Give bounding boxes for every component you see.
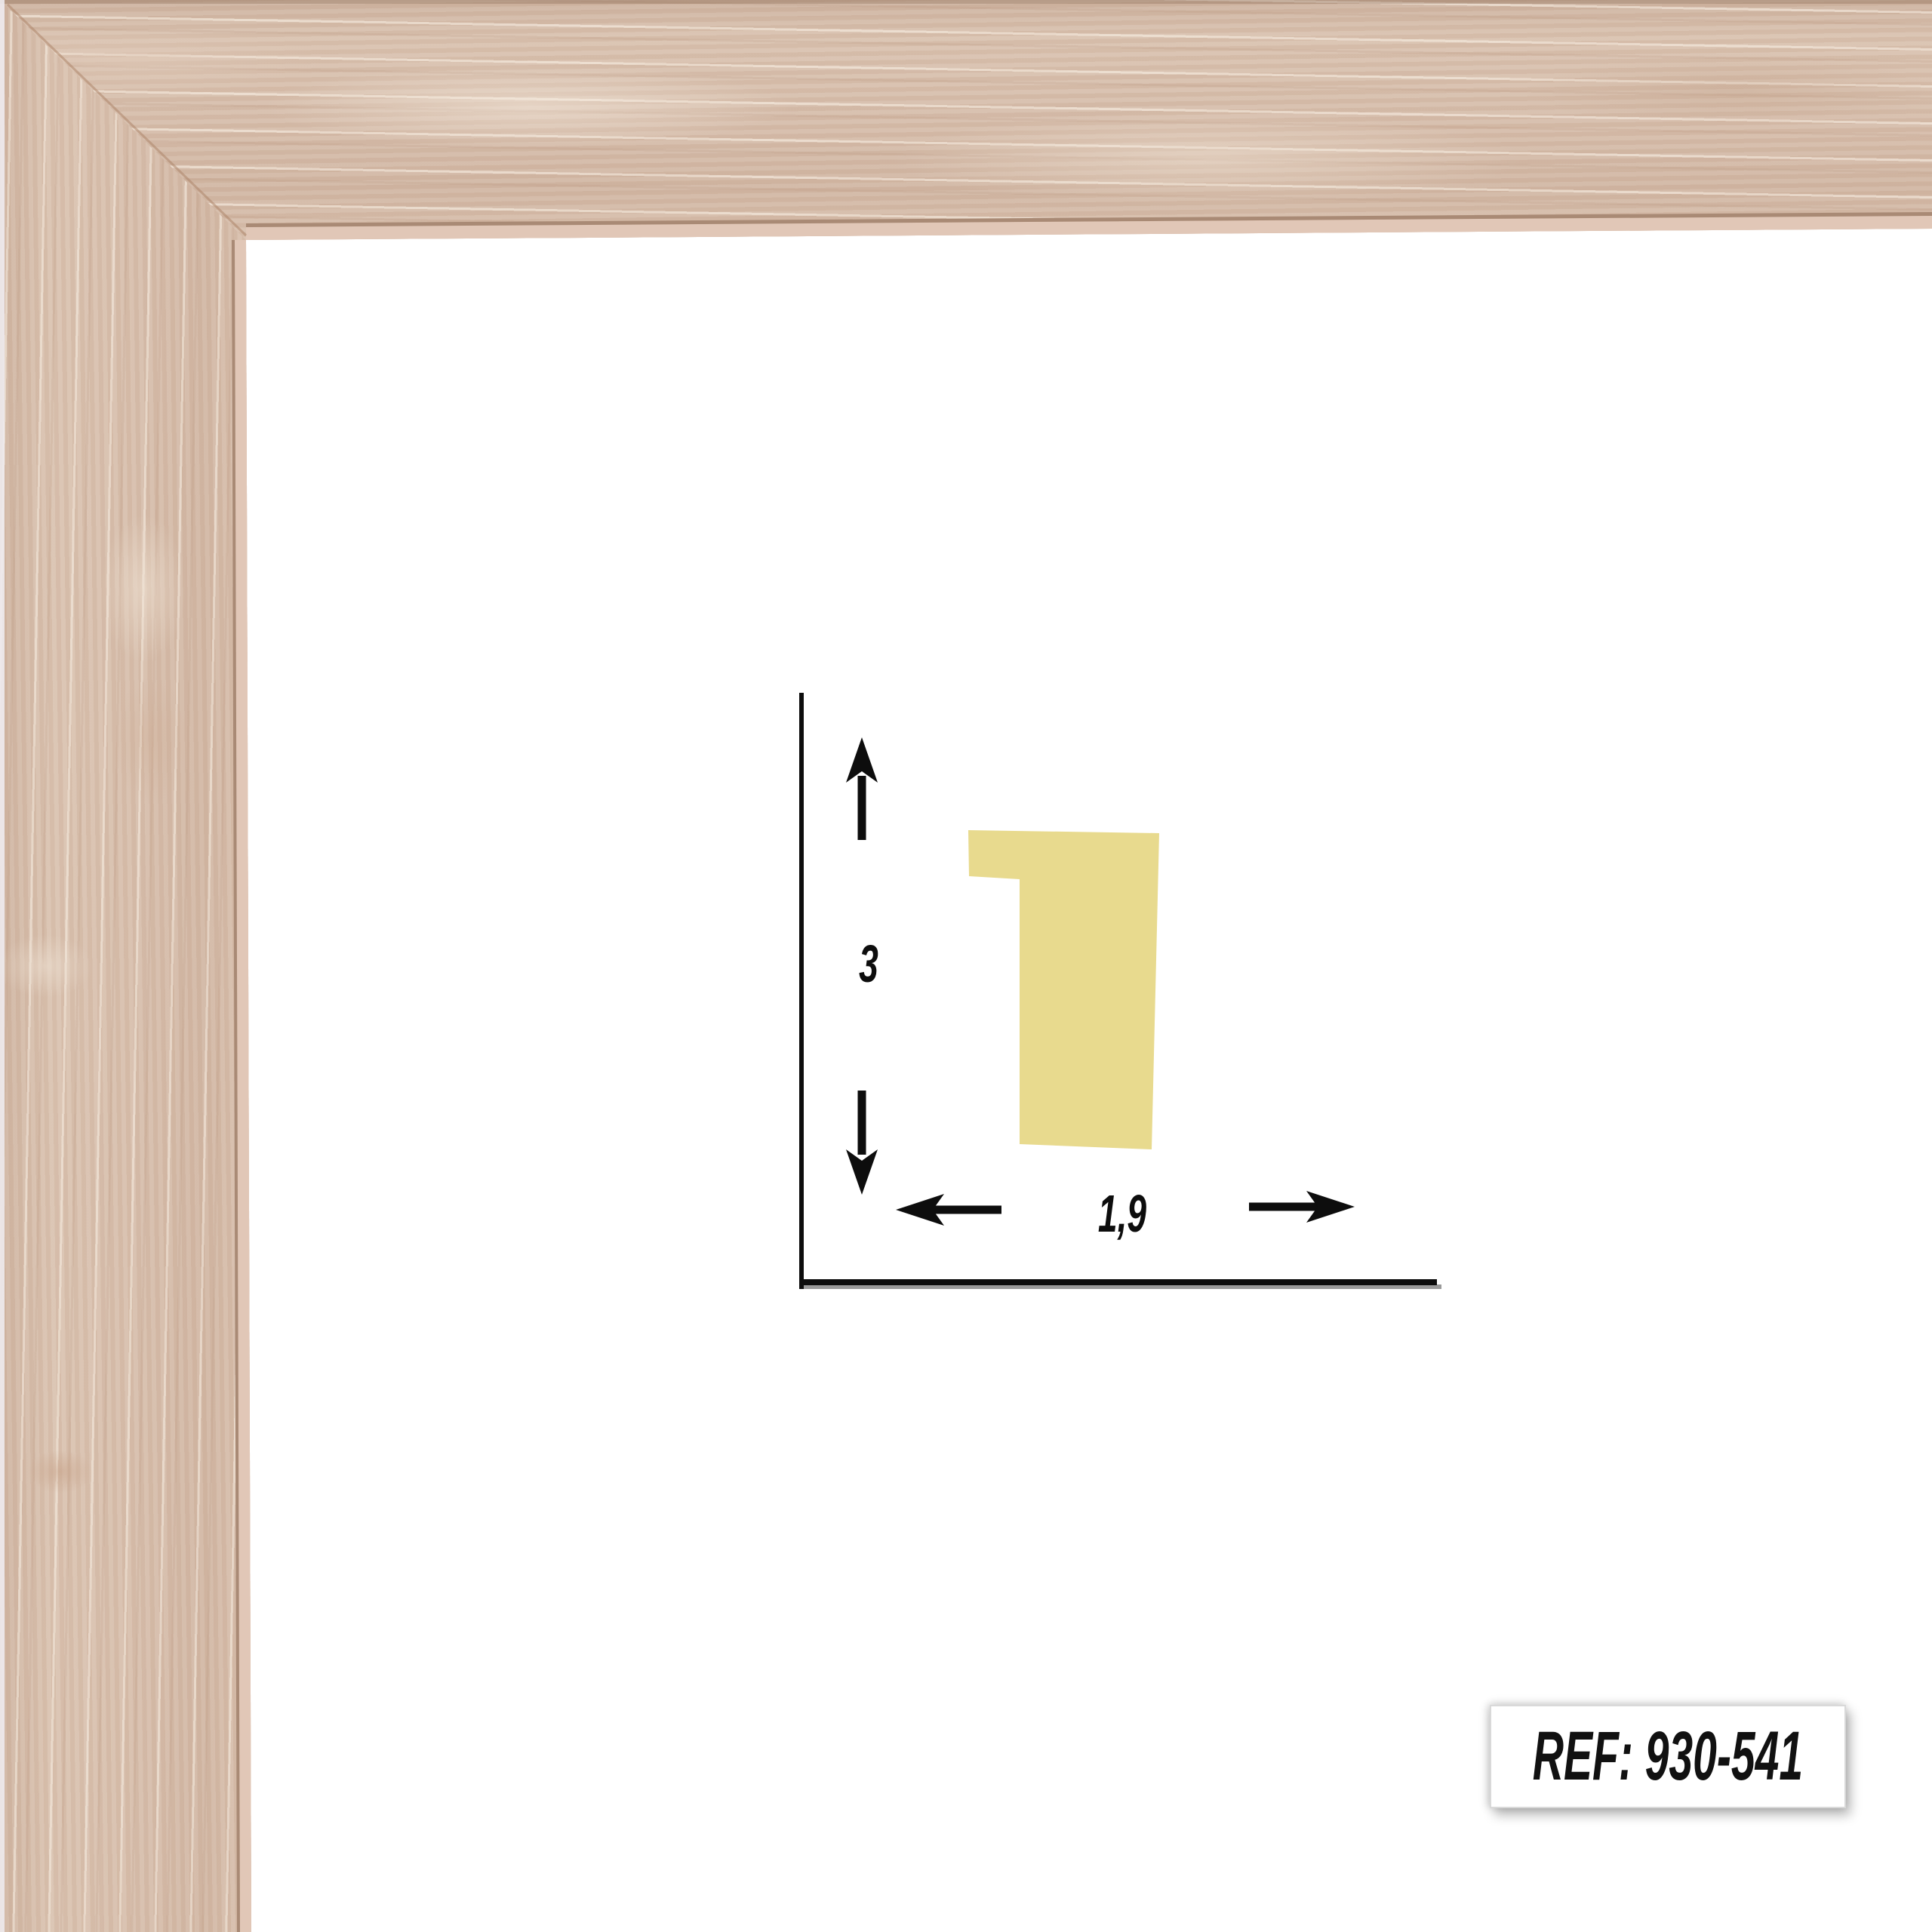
down-arrow-icon	[846, 1091, 878, 1195]
baseline	[799, 1279, 1437, 1285]
moulding-profile-shape	[968, 830, 1159, 1149]
miter-joint-seam	[8, 5, 246, 235]
left-arrow-icon	[896, 1194, 1001, 1226]
up-arrow-icon	[846, 737, 878, 840]
vertical-axis-line	[799, 693, 804, 1289]
product-image-canvas: 3 1,9 REF: 930-541	[0, 0, 1932, 1932]
frame-outer-edge-left	[0, 0, 5, 1932]
ref-label: REF: 930-541	[1533, 1717, 1803, 1796]
ref-badge: REF: 930-541	[1490, 1705, 1846, 1808]
right-arrow-icon	[1249, 1191, 1355, 1223]
width-dimension-label: 1,9	[1082, 1183, 1162, 1244]
height-dimension-label: 3	[838, 934, 898, 994]
frame-outer-edge-top	[0, 0, 1932, 4]
